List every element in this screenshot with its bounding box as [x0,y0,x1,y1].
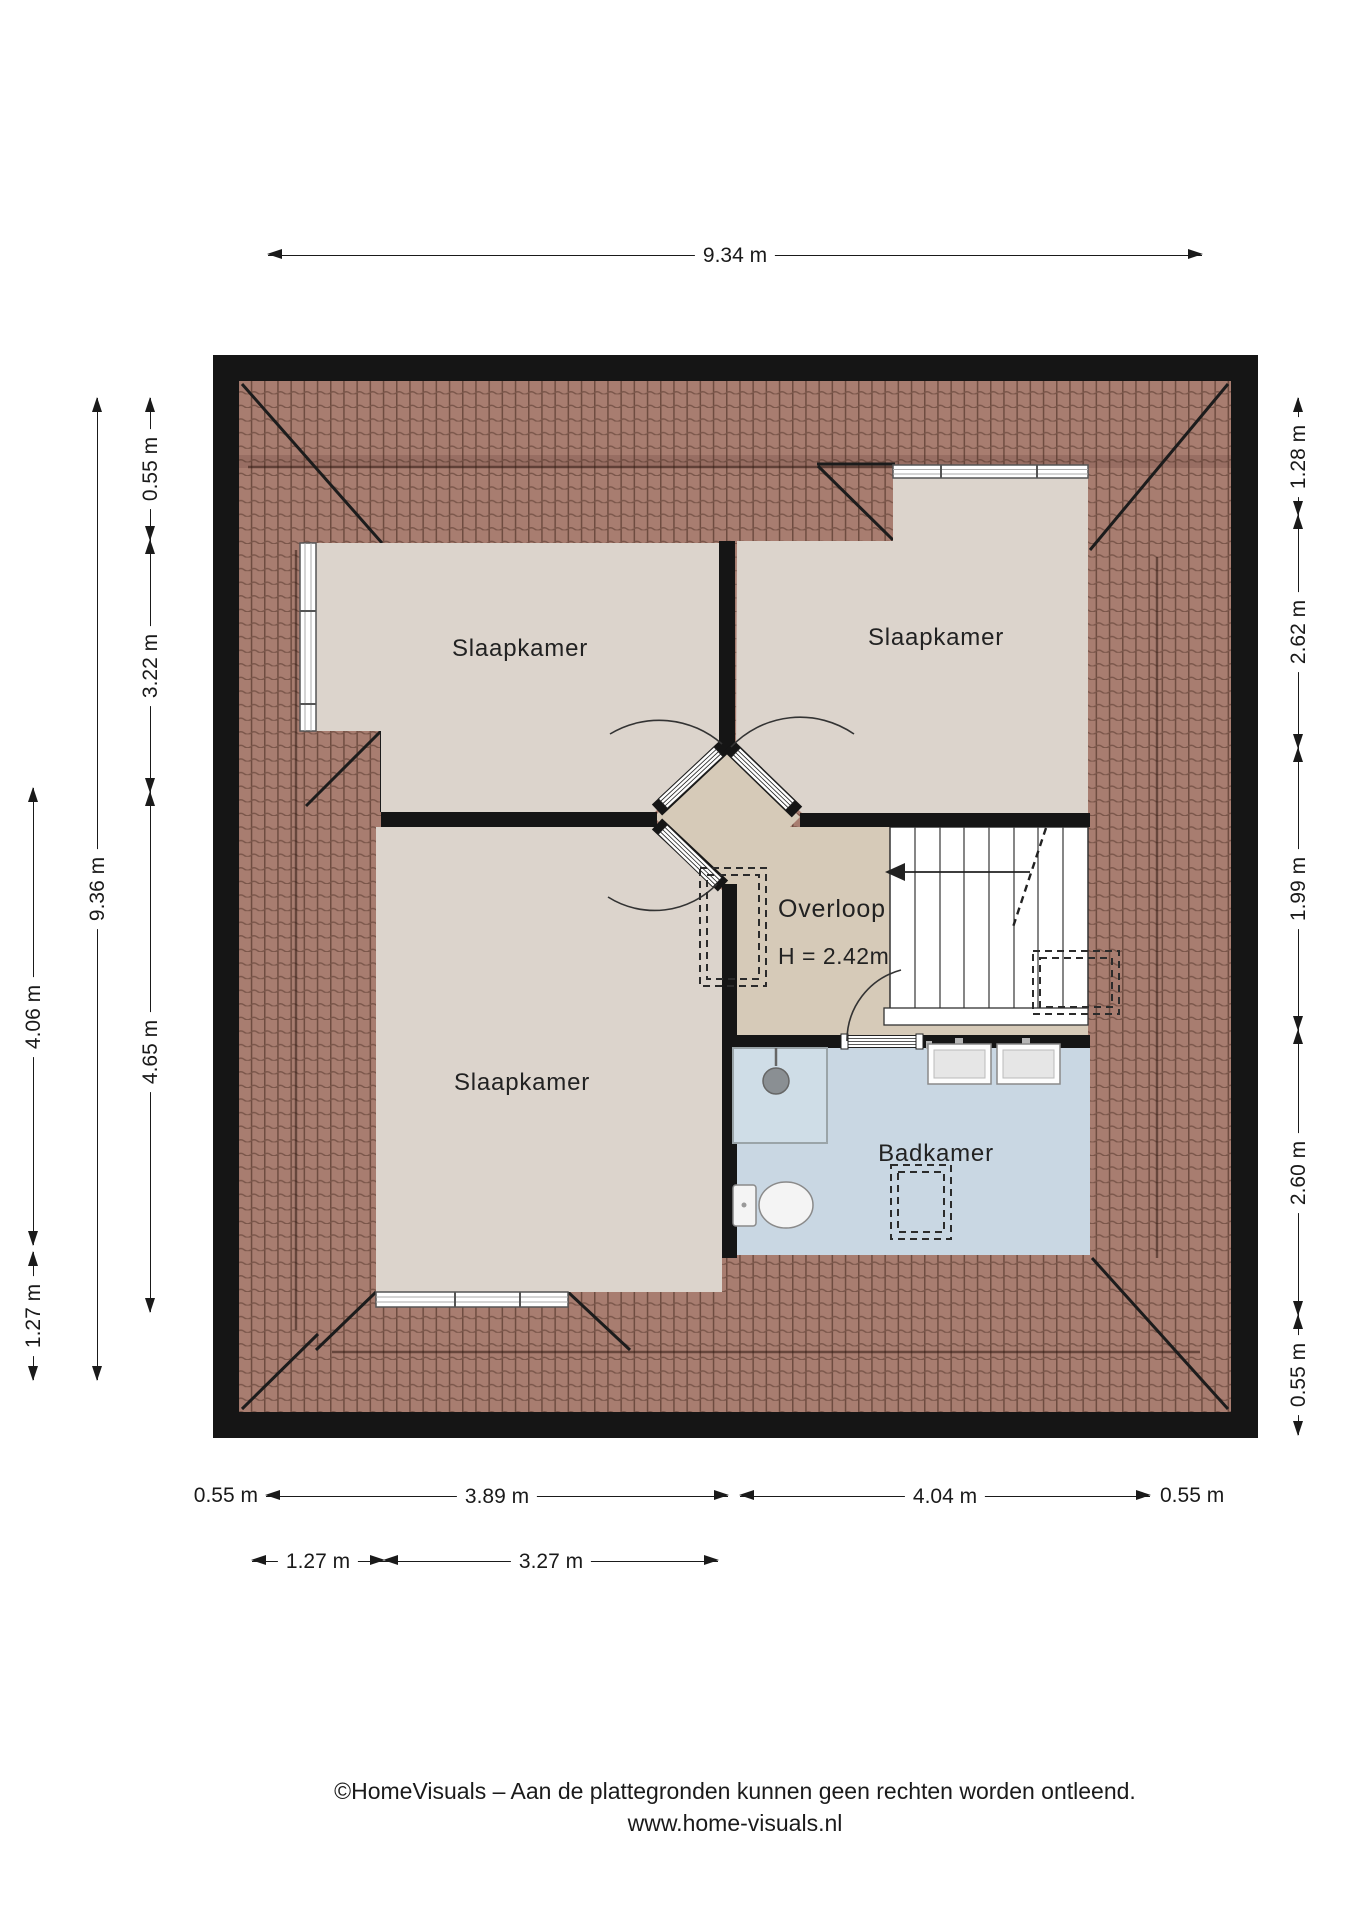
bedroom-bottom-left-label: Slaapkamer [454,1069,590,1096]
arrow-left-icon [251,1555,266,1565]
dim-left-inner-mid: 3.22 m [150,540,151,792]
dim-label: 1.99 m [1286,849,1312,929]
arrow-down-icon [1293,1421,1303,1436]
dim-label: 1.27 m [278,1549,358,1575]
dim-bottom-404: 4.04 m [740,1496,1150,1497]
dim-label: 3.89 m [457,1484,537,1510]
arrow-down-icon [145,1298,155,1313]
footer-url: www.home-visuals.nl [628,1808,843,1838]
landing-height-label: H = 2.42m [778,943,889,969]
floorplan-page: 9.34 m 4.06 m 1.27 m 9.36 m 0.55 m 3.22 … [0,0,1358,1920]
arrow-left-icon [739,1490,754,1500]
dim-label: 2.60 m [1286,1132,1312,1212]
arrow-up-icon [1293,397,1303,412]
bedroom-top-left-label: Slaapkamer [452,635,588,662]
dim-label: 4.65 m [138,1012,164,1092]
dim-left-outer-top: 4.06 m [33,788,34,1245]
landing-label: Overloop [778,895,886,923]
dim-bottom-327: 3.27 m [384,1561,718,1562]
dim-label: 0.55 m [138,429,164,509]
arrow-up-icon [1293,747,1303,762]
dim-label: 3.27 m [511,1549,591,1575]
arrow-up-icon [145,791,155,806]
arrow-up-icon [28,1251,38,1266]
floorplan-drawing: Slaapkamer Slaapkamer Slaapkamer Badkame… [213,355,1258,1439]
footer-disclaimer: ©HomeVisuals – Aan de plattegronden kunn… [334,1776,1136,1806]
arrow-up-icon [145,397,155,412]
dim-bottom-389: 3.89 m [266,1496,728,1497]
dim-label: 1.28 m [1286,416,1312,496]
window-left [300,543,316,731]
dim-right-5: 0.55 m [1298,1315,1299,1435]
dim-right-2: 2.62 m [1298,515,1299,748]
arrow-up-icon [1293,1314,1303,1329]
dim-top-width: 9.34 m [268,255,1202,256]
window-top [893,465,1088,478]
arrow-left-icon [383,1555,398,1565]
shower-drain-icon [763,1068,789,1094]
arrow-up-icon [28,787,38,802]
dim-right-1: 1.28 m [1298,398,1299,515]
arrow-down-icon [28,1231,38,1246]
dim-left-full-height: 9.36 m [97,398,98,1380]
bedroom-top-right-label: Slaapkamer [868,624,1004,651]
arrow-up-icon [1293,1029,1303,1044]
dim-left-outer-bottom: 1.27 m [33,1252,34,1380]
arrow-left-icon [265,1490,280,1500]
dim-label: 1.27 m [21,1276,47,1356]
arrow-up-icon [92,397,102,412]
arrow-left-icon [267,249,282,259]
dim-label: 9.36 m [85,849,111,929]
dim-label: 0.55 m [1286,1335,1312,1415]
arrow-right-icon [1136,1490,1151,1500]
dim-left-inner-bottom: 4.65 m [150,792,151,1312]
arrow-up-icon [145,539,155,554]
toilet [733,1182,813,1228]
window-bottom-dormer [376,1292,568,1307]
bedroom-bottom-left-floor [376,827,722,1292]
dim-left-inner-top: 0.55 m [150,398,151,540]
staircase [884,827,1088,1025]
dim-bottom-055-left: 0.55 m [188,1482,258,1510]
dim-bottom-127: 1.27 m [252,1561,384,1562]
dim-label: 9.34 m [695,243,775,269]
dim-label: 2.62 m [1286,591,1312,671]
dim-right-4: 2.60 m [1298,1030,1299,1315]
dim-label: 4.06 m [21,976,47,1056]
bathroom-label: Badkamer [878,1140,994,1167]
arrow-right-icon [1188,249,1203,259]
arrow-right-icon [714,1490,729,1500]
dim-label: 4.04 m [905,1484,985,1510]
dim-bottom-055-right: 0.55 m [1160,1482,1224,1510]
stair-landing-rail [884,1008,1088,1025]
shower [733,1048,827,1143]
arrow-down-icon [92,1366,102,1381]
arrow-down-icon [28,1366,38,1381]
dim-right-3: 1.99 m [1298,748,1299,1030]
arrow-up-icon [1293,514,1303,529]
arrow-right-icon [704,1555,719,1565]
dim-label: 3.22 m [138,626,164,706]
